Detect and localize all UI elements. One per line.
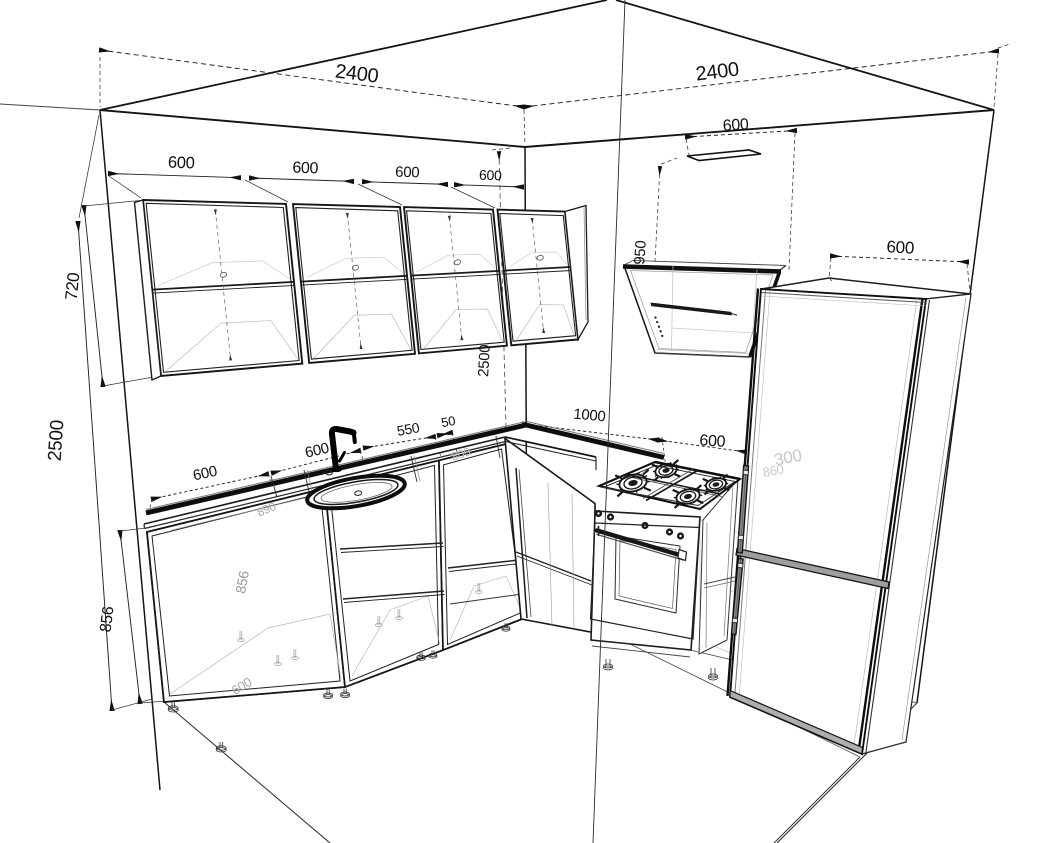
- svg-text:600: 600: [699, 432, 726, 451]
- svg-text:600: 600: [886, 237, 914, 257]
- svg-text:600: 600: [168, 154, 195, 173]
- svg-text:600: 600: [395, 164, 420, 182]
- svg-text:600: 600: [479, 167, 503, 184]
- svg-text:2500: 2500: [45, 419, 69, 461]
- svg-text:2500: 2500: [475, 344, 494, 377]
- svg-text:600: 600: [292, 160, 319, 178]
- svg-text:50: 50: [440, 413, 456, 430]
- svg-text:720: 720: [62, 272, 84, 301]
- svg-text:1000: 1000: [573, 406, 607, 426]
- svg-text:856: 856: [98, 605, 118, 633]
- svg-text:950: 950: [631, 240, 650, 265]
- svg-text:600: 600: [722, 116, 749, 135]
